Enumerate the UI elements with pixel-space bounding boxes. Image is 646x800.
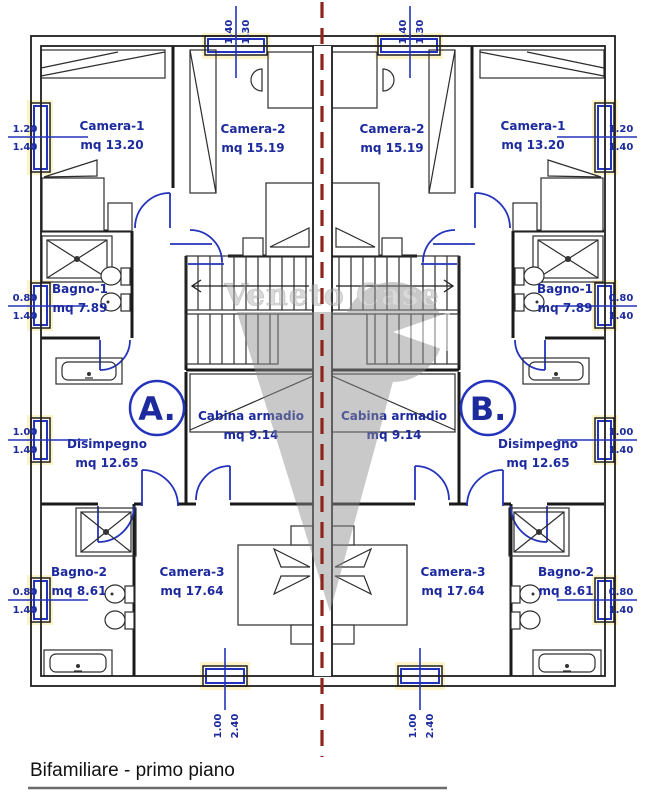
dim-right-camera1-w: 1.20 [609,124,634,135]
dim-right-disimpegno-h: 1.40 [609,445,634,456]
door-camera3 [142,470,178,506]
dim-top-left-w: 1.30 [241,20,252,45]
floorplan-page: 1.20 1.40 0.80 1.40 1.00 1.40 0.80 1.40 … [0,0,646,800]
label-bagno1-a-area: mq 7.89 [53,301,108,315]
dim-bottom-right-h: 2.40 [425,714,436,739]
label-disimpegno-a-name: Disimpegno [67,437,147,451]
label-camera1-b-name: Camera-1 [501,119,566,133]
label-bagno2-b-area: mq 8.61 [539,584,594,598]
watermark-text: Veneto Case [223,278,439,313]
label-bagno2-a-name: Bagno-2 [51,565,107,579]
dim-right-bagno1-h: 1.40 [609,311,634,322]
label-disimpegno-b-name: Disimpegno [498,437,578,451]
dim-left-camera1-h: 1.40 [13,142,38,153]
dim-right-bagno1-w: 0.80 [609,293,634,304]
label-camera3-b-name: Camera-3 [421,565,486,579]
dim-right-bagno2-h: 1.40 [609,605,634,616]
dim-right-camera1-h: 1.40 [609,142,634,153]
label-bagno2-b-name: Bagno-2 [538,565,594,579]
dim-bottom-left-w: 1.00 [213,714,224,739]
dim-left-bagno2-w: 0.80 [13,587,38,598]
unit-badge-a: A. [130,381,184,435]
label-camera1-b-area: mq 13.20 [501,138,564,152]
door-cabina [196,466,230,500]
label-camera2-b-name: Camera-2 [360,122,425,136]
dim-left-bagno2-h: 1.40 [13,605,38,616]
label-camera3-b-area: mq 17.64 [421,584,484,598]
door-hall-stairs [170,230,224,264]
dim-top-right-w: 1.30 [415,20,426,45]
label-bagno1-b-area: mq 7.89 [538,301,593,315]
unit-badge-b-letter: B. [470,390,507,428]
dim-left-disimpegno-w: 1.00 [13,427,38,438]
label-bagno2-a-area: mq 8.61 [52,584,107,598]
label-camera2-b-area: mq 15.19 [360,141,423,155]
label-bagno1-b-name: Bagno-1 [537,282,593,296]
dim-right-disimpegno-w: 1.00 [609,427,634,438]
label-camera1-a-name: Camera-1 [80,119,145,133]
label-camera3-a-name: Camera-3 [160,565,225,579]
door-camera1 [135,193,170,228]
dim-left-disimpegno-h: 1.40 [13,445,38,456]
label-disimpegno-a-area: mq 12.65 [75,456,138,470]
label-camera3-a-area: mq 17.64 [160,584,223,598]
dim-bottom-left-h: 2.40 [230,714,241,739]
label-camera2-a-area: mq 15.19 [221,141,284,155]
unit-badge-a-letter: A. [138,390,176,428]
dim-left-bagno1-h: 1.40 [13,311,38,322]
dim-top-right-h: 1.40 [398,20,409,45]
dim-bottom-right-w: 1.00 [408,714,419,739]
plan-title: Bifamiliare - primo piano [30,760,235,781]
dim-right-bagno2-w: 0.80 [609,587,634,598]
label-camera1-a-area: mq 13.20 [80,138,143,152]
floorplan-canvas: 1.20 1.40 0.80 1.40 1.00 1.40 0.80 1.40 … [0,0,646,800]
plan-title-block: Bifamiliare - primo piano [28,760,447,788]
unit-badge-b: B. [461,381,515,435]
label-disimpegno-b-area: mq 12.65 [506,456,569,470]
camera3-furniture [238,526,313,644]
dim-left-bagno1-w: 0.80 [13,293,38,304]
label-camera2-a-name: Camera-2 [221,122,286,136]
dim-top-left-h: 1.40 [224,20,235,45]
dim-left-camera1-w: 1.20 [13,124,38,135]
label-bagno1-a-name: Bagno-1 [52,282,108,296]
label-cabina-a-area: mq 9.14 [224,428,279,442]
